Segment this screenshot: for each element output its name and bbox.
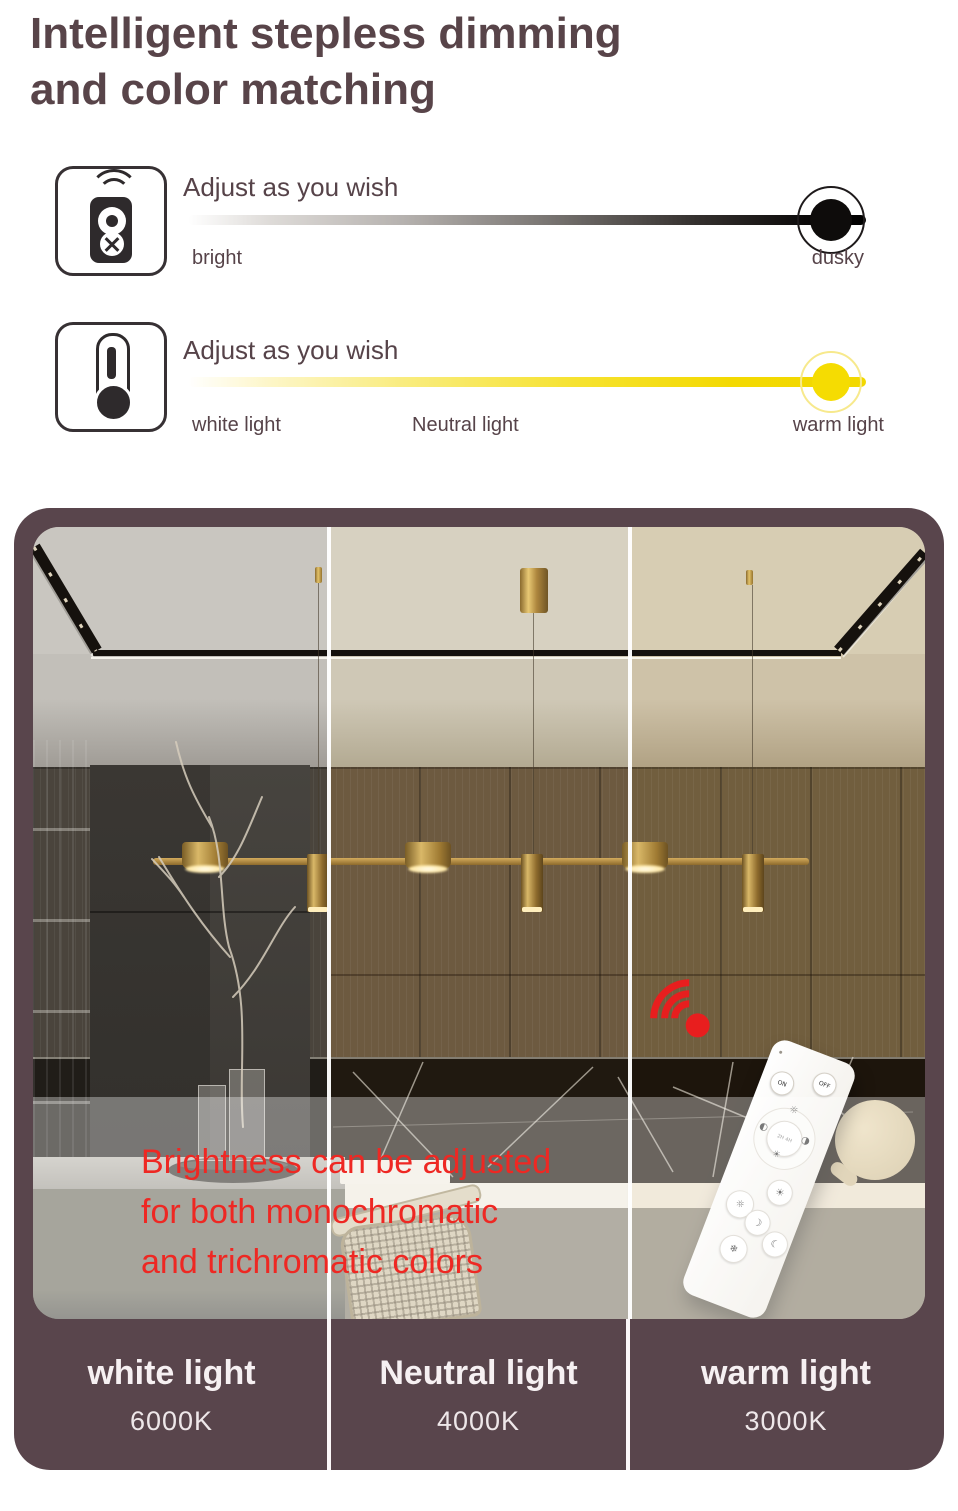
column-kelvin: 6000K — [130, 1406, 213, 1437]
column-white-light: white light 6000K — [14, 1319, 329, 1470]
remote-led — [779, 1050, 783, 1054]
column-name: Neutral light — [379, 1354, 577, 1393]
brightness-slider-track[interactable] — [188, 215, 866, 225]
brightness-slider-handle[interactable] — [810, 199, 852, 241]
remote-control-icon — [55, 166, 167, 276]
remote-off-button: OFF — [809, 1069, 840, 1100]
remote-on-button: ON — [767, 1068, 798, 1099]
white-light-label: white light — [192, 414, 281, 437]
caption-line3: and trichromatic colors — [141, 1237, 551, 1287]
label-divider-2 — [626, 1319, 630, 1470]
dusky-label: dusky — [812, 247, 864, 270]
page-title-line1: Intelligent stepless dimming — [30, 6, 790, 62]
color-temp-slider-handle[interactable] — [812, 363, 850, 401]
panel-divider-2 — [628, 527, 632, 1319]
neutral-light-label: Neutral light — [412, 414, 519, 437]
dimming-label: Adjust as you wish — [183, 172, 398, 203]
bright-label: bright — [192, 247, 242, 270]
remote-dial — [98, 207, 126, 235]
remote-power — [100, 232, 124, 256]
page-title: Intelligent stepless dimming and color m… — [30, 6, 790, 118]
column-name: warm light — [701, 1354, 871, 1393]
caption-line1: Brightness can be adjusted — [141, 1137, 551, 1187]
caption-line2: for both monochromatic — [141, 1187, 551, 1237]
column-kelvin: 3000K — [744, 1406, 827, 1437]
thermometer-stem — [107, 347, 116, 379]
temperature-labels: white light 6000K Neutral light 4000K wa… — [14, 1319, 944, 1470]
column-warm-light: warm light 3000K — [628, 1319, 944, 1470]
product-feature-page: Intelligent stepless dimming and color m… — [0, 0, 958, 1511]
photo-caption: Brightness can be adjusted for both mono… — [141, 1137, 551, 1287]
thermometer-bulb — [94, 383, 133, 422]
column-neutral-light: Neutral light 4000K — [329, 1319, 628, 1470]
warm-light-label: warm light — [793, 414, 884, 437]
kitchen-photo: ON OFF 2H 4H ☼ ◐ ◑ ☀ ☀ ☼ ☽ ☾ ❄ Brightnes… — [33, 527, 925, 1319]
column-name: white light — [87, 1354, 255, 1393]
remote-body — [90, 197, 132, 263]
comparison-frame: ON OFF 2H 4H ☼ ◐ ◑ ☀ ☀ ☼ ☽ ☾ ❄ Brightnes… — [14, 508, 944, 1470]
thermometer-icon — [55, 322, 167, 432]
color-temp-label: Adjust as you wish — [183, 335, 398, 366]
label-divider-1 — [327, 1319, 331, 1470]
color-temp-slider-track[interactable] — [188, 377, 866, 387]
page-title-line2: and color matching — [30, 62, 790, 118]
column-kelvin: 4000K — [437, 1406, 520, 1437]
